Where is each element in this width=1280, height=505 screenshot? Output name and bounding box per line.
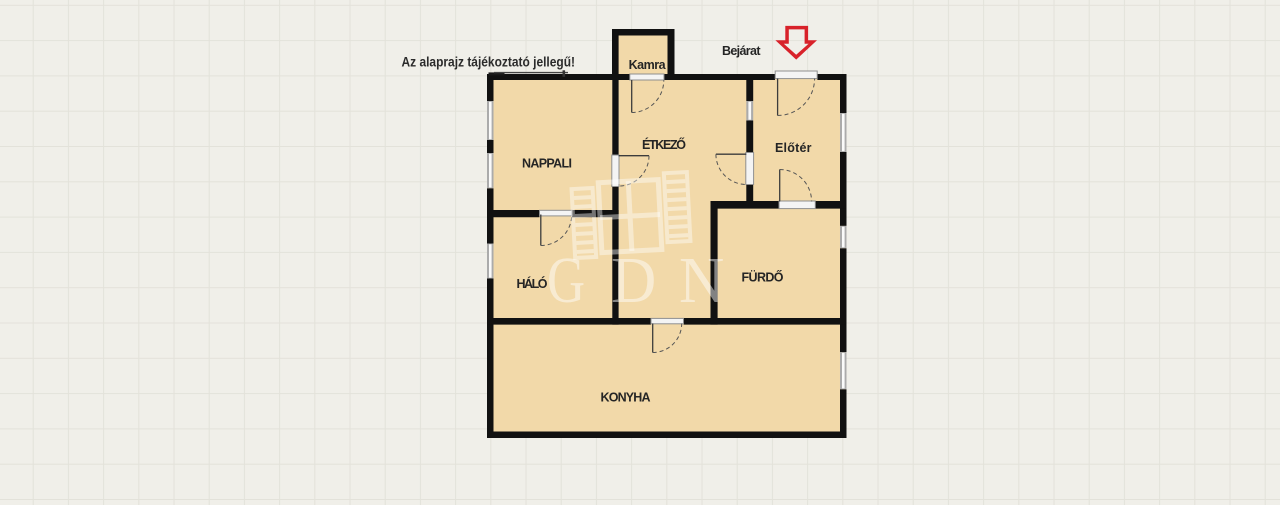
svg-text:D: D <box>611 244 656 317</box>
svg-text:Előtér: Előtér <box>775 141 812 155</box>
svg-text:G: G <box>547 243 585 316</box>
svg-text:ÉTKEZŐ: ÉTKEZŐ <box>642 137 686 152</box>
svg-text:Az alaprajz tájékoztató jelleg: Az alaprajz tájékoztató jellegű! <box>402 55 576 70</box>
svg-text:N: N <box>679 244 724 317</box>
svg-text:FÜRDŐ: FÜRDŐ <box>742 270 784 285</box>
svg-text:Bejárat: Bejárat <box>722 44 761 58</box>
svg-text:NAPPALI: NAPPALI <box>522 157 572 171</box>
svg-text:Kamra: Kamra <box>629 58 667 72</box>
svg-text:KONYHA: KONYHA <box>601 391 651 405</box>
svg-text:HÁLÓ: HÁLÓ <box>517 276 548 291</box>
